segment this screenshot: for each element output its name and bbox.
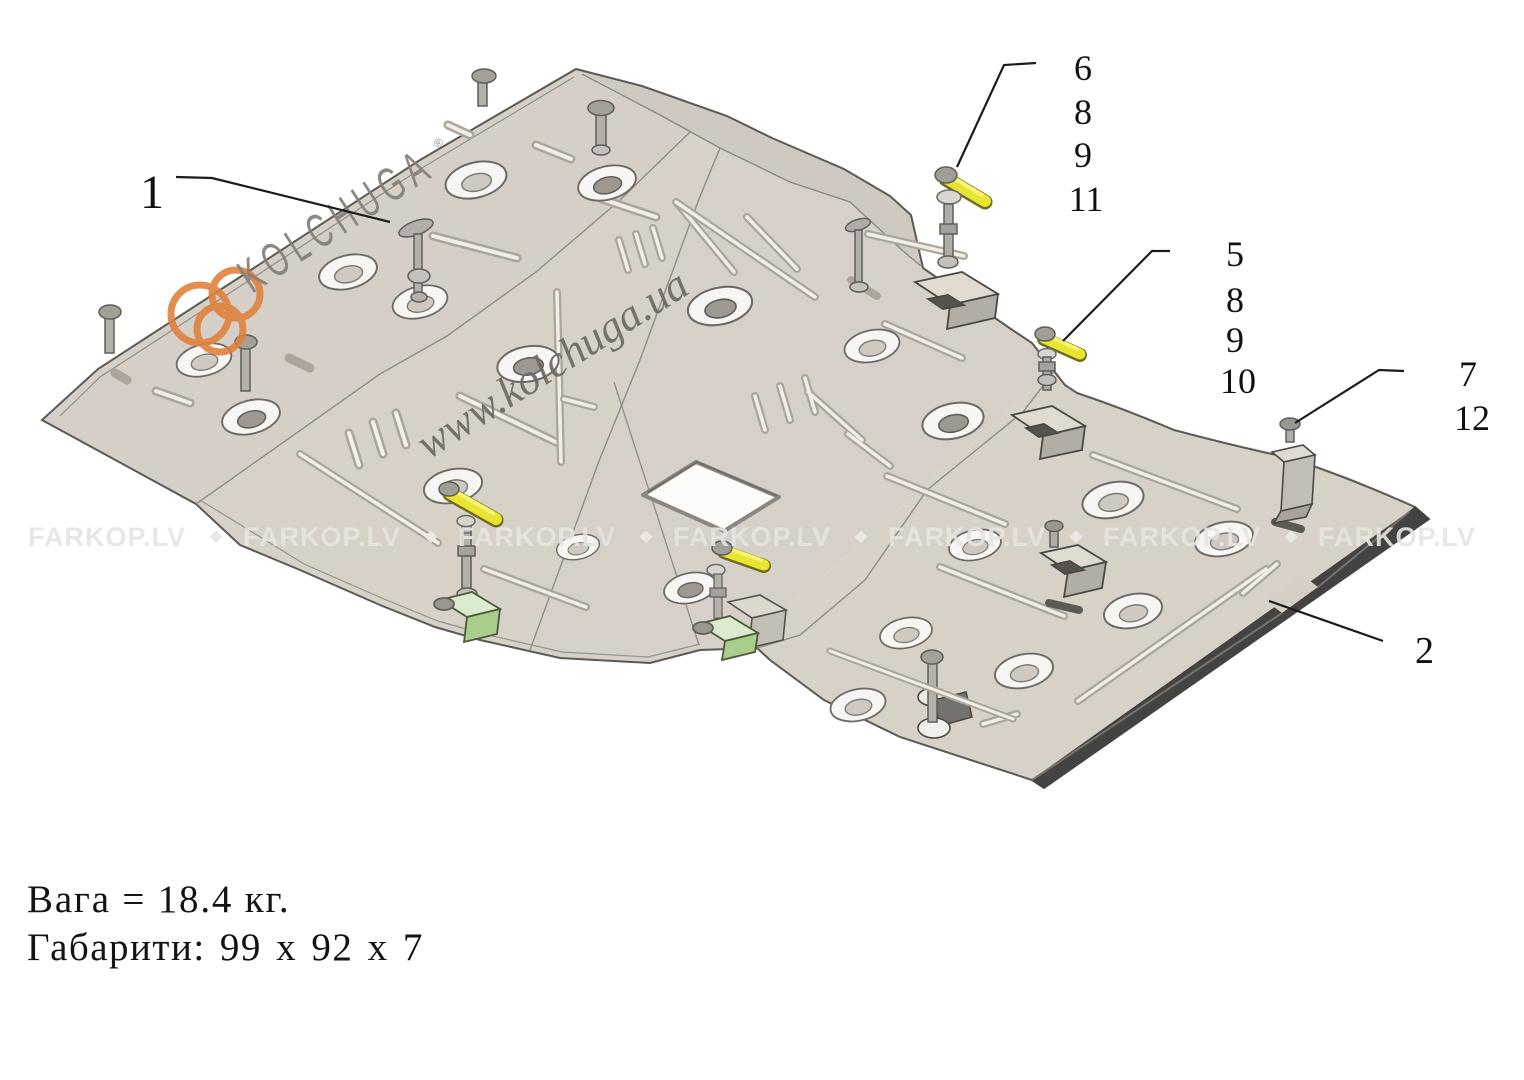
svg-text:FARKOP.LV: FARKOP.LV	[28, 522, 186, 552]
svg-text:FARKOP.LV: FARKOP.LV	[673, 522, 831, 552]
svg-text:6: 6	[1074, 48, 1092, 88]
svg-text:9: 9	[1226, 320, 1244, 360]
svg-text:FARKOP.LV: FARKOP.LV	[1318, 522, 1476, 552]
svg-text:FARKOP.LV: FARKOP.LV	[1103, 522, 1261, 552]
svg-text:FARKOP.LV: FARKOP.LV	[888, 522, 1046, 552]
svg-text:Габарити: 99 х 92 х 7: Габарити: 99 х 92 х 7	[27, 926, 424, 969]
svg-text:12: 12	[1454, 398, 1490, 438]
svg-text:1: 1	[140, 166, 164, 219]
svg-text:11: 11	[1069, 179, 1104, 219]
svg-text:FARKOP.LV: FARKOP.LV	[243, 522, 401, 552]
svg-text:2: 2	[1415, 630, 1434, 672]
svg-text:5: 5	[1226, 234, 1244, 274]
svg-text:Вага = 18.4 кг.: Вага = 18.4 кг.	[27, 878, 290, 921]
svg-text:9: 9	[1074, 135, 1092, 175]
svg-text:FARKOP.LV: FARKOP.LV	[458, 522, 616, 552]
svg-text:8: 8	[1074, 92, 1092, 132]
svg-text:8: 8	[1226, 280, 1244, 320]
svg-text:10: 10	[1220, 361, 1256, 401]
svg-text:7: 7	[1459, 354, 1477, 394]
